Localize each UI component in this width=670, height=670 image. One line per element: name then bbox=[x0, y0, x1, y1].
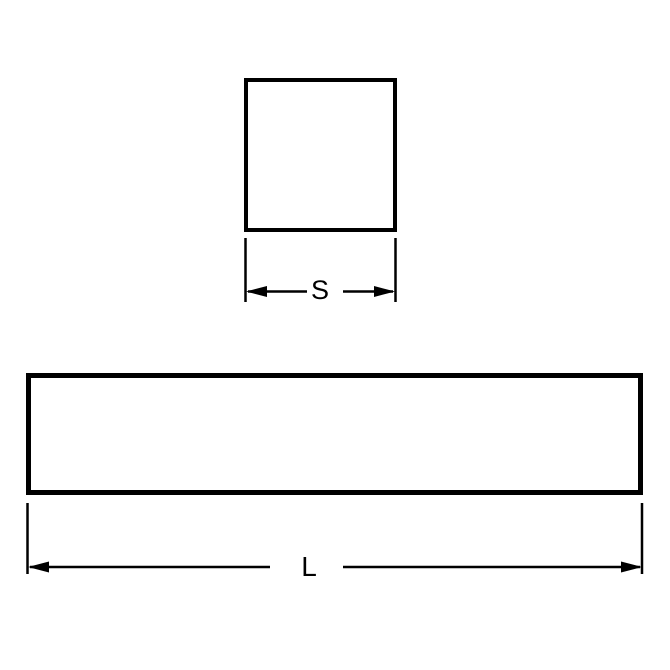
bar-side-view bbox=[29, 376, 641, 493]
l-arrow-left-icon bbox=[28, 562, 49, 573]
s-arrow-right-icon bbox=[374, 286, 395, 297]
s-dimension-label: S bbox=[311, 275, 329, 305]
s-arrow-left-icon bbox=[246, 286, 267, 297]
technical-drawing-canvas: S L bbox=[0, 0, 670, 670]
dimension-drawing: S L bbox=[0, 0, 670, 670]
l-dimension-label: L bbox=[301, 551, 317, 582]
square-cross-section bbox=[246, 80, 395, 230]
l-arrow-right-icon bbox=[621, 562, 642, 573]
